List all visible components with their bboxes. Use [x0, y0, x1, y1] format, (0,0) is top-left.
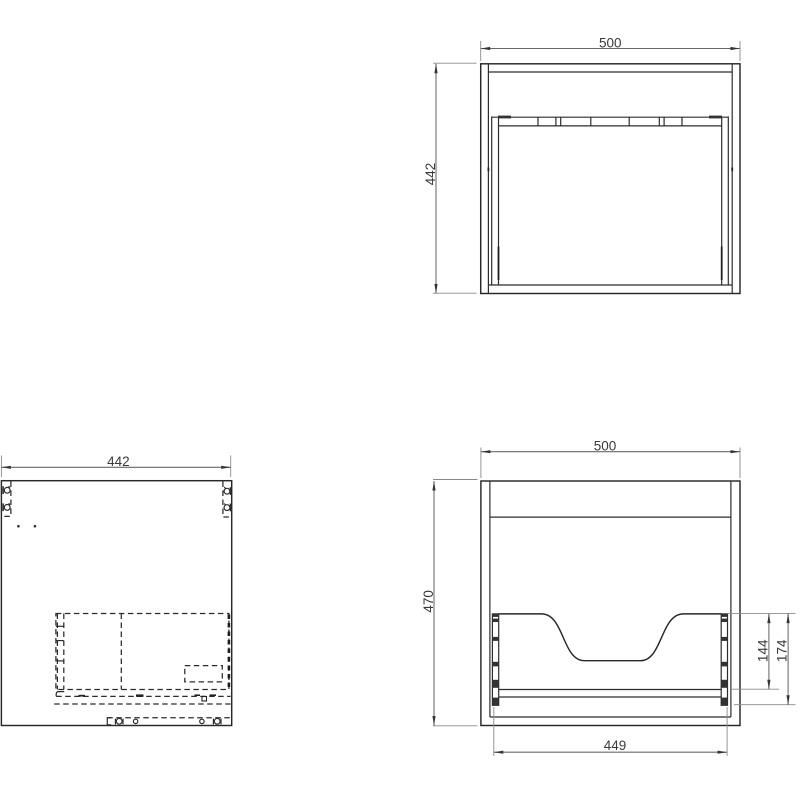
svg-text:470: 470	[421, 590, 436, 613]
svg-text:500: 500	[594, 438, 617, 453]
svg-text:500: 500	[599, 35, 622, 50]
svg-text:442: 442	[423, 163, 438, 186]
svg-text:144: 144	[755, 639, 770, 662]
svg-text:442: 442	[107, 454, 130, 469]
svg-text:174: 174	[775, 639, 790, 662]
svg-text:449: 449	[604, 738, 627, 753]
